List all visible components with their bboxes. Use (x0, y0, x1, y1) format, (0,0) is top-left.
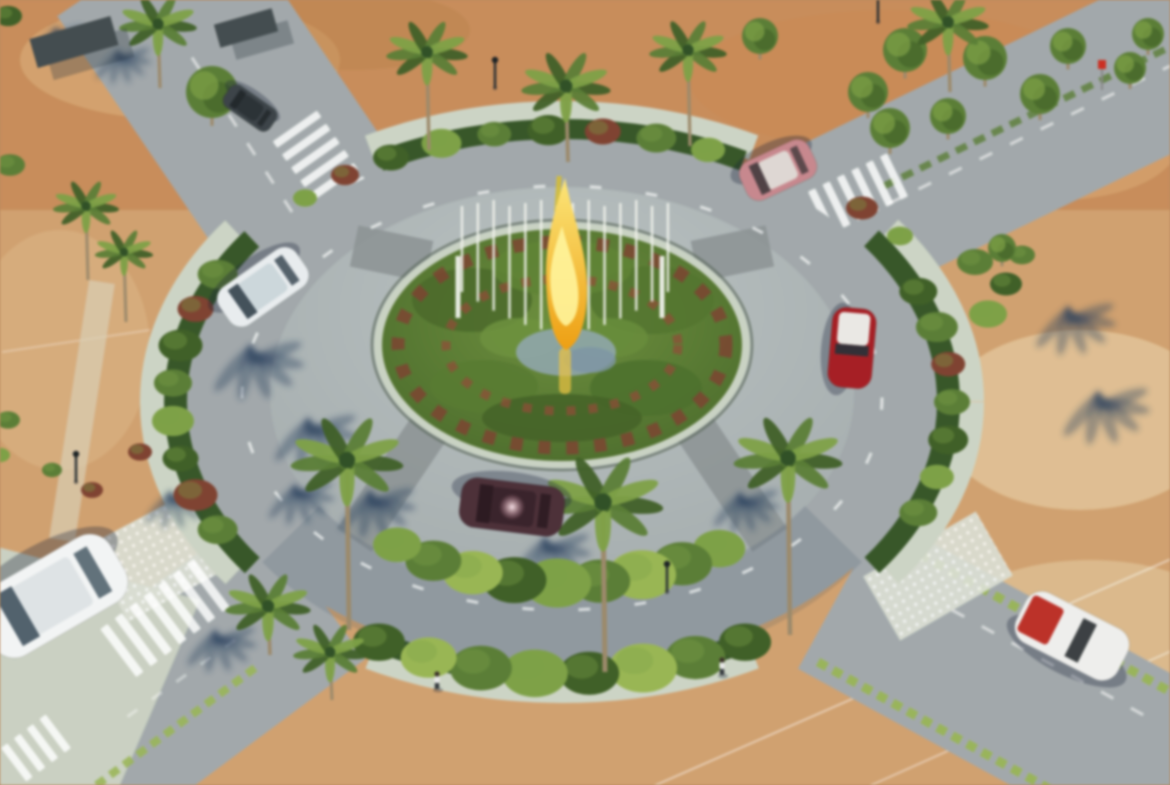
island-spoke-path (695, 246, 770, 262)
bush-highlight (938, 391, 958, 405)
bush (928, 425, 968, 454)
bush (128, 443, 152, 460)
tree-canopy-light (1053, 32, 1073, 52)
bush (331, 165, 359, 185)
bush-highlight (202, 262, 224, 278)
palm-crown-center (780, 450, 796, 466)
bush (401, 637, 457, 677)
bush-highlight (671, 639, 704, 663)
bush-highlight (481, 124, 500, 138)
bush-highlight (532, 117, 555, 134)
bush-highlight (377, 146, 397, 160)
palm-crown-center (339, 452, 355, 468)
bush-highlight (178, 481, 202, 499)
bush-highlight (334, 166, 349, 177)
bush-highlight (358, 626, 387, 647)
lamp-head (73, 451, 79, 457)
bush-highlight (295, 191, 308, 201)
bush-highlight (903, 280, 924, 295)
tree-canopy-light (966, 40, 990, 64)
bush-highlight (849, 198, 867, 211)
tree-canopy-light (886, 32, 910, 56)
bush (957, 249, 993, 275)
bush (559, 652, 619, 695)
bush-highlight (923, 466, 942, 480)
bush (154, 369, 192, 396)
roundabout-render (0, 0, 1170, 785)
pedestrian-legs (720, 669, 724, 675)
pedestrian-legs (435, 683, 439, 689)
bush-highlight (890, 228, 904, 238)
tree-canopy-light (745, 22, 765, 42)
bush (934, 389, 970, 415)
bush (198, 515, 238, 544)
bush (691, 138, 725, 162)
bush (502, 650, 568, 698)
tree-canopy-light (933, 102, 953, 122)
bush (899, 499, 937, 526)
scene-svg (0, 0, 1170, 785)
bush (178, 296, 214, 322)
bush-highlight (508, 653, 544, 679)
bush-highlight (44, 464, 55, 472)
bush-highlight (973, 302, 994, 317)
tree-canopy-light (190, 71, 219, 100)
bush-highlight (694, 139, 713, 153)
bush (373, 527, 421, 562)
tree-canopy-light (873, 112, 895, 134)
bush-highlight (616, 647, 653, 674)
palm-crown-center (81, 201, 91, 211)
bush (159, 330, 203, 362)
bush-highlight (378, 530, 404, 549)
palm-crown-center (120, 248, 128, 256)
bush (174, 479, 218, 511)
sign-panel (1098, 60, 1106, 69)
bush-highlight (202, 517, 224, 533)
bush-highlight (961, 251, 981, 265)
bush-highlight (181, 298, 201, 312)
bush (920, 465, 954, 489)
bush (373, 145, 409, 171)
bush-highlight (903, 501, 924, 516)
bush-highlight (158, 371, 179, 386)
bush-highlight (724, 626, 753, 647)
bush-highlight (166, 447, 186, 461)
bush-highlight (156, 408, 179, 425)
bush (636, 124, 676, 153)
bush (899, 278, 937, 305)
palm-crown-center (560, 80, 573, 93)
bush (887, 227, 913, 246)
bush-highlight (456, 649, 490, 674)
bush-highlight (993, 274, 1011, 287)
tree-canopy-light (851, 76, 873, 98)
bush-highlight (932, 427, 954, 443)
pedestrian-torso (434, 676, 439, 683)
bush-highlight (83, 483, 95, 492)
bush-highlight (640, 126, 662, 142)
pedestrian-torso (719, 662, 724, 669)
pool-deep (564, 347, 616, 373)
bush-highlight (565, 655, 598, 679)
vehicle-roof (836, 312, 870, 347)
bush (450, 646, 512, 691)
tree-canopy-light (1023, 78, 1045, 100)
palm-crown-center (942, 16, 954, 28)
bush (916, 312, 958, 342)
pedestrian-head (434, 671, 439, 676)
palm-crown-center (682, 44, 693, 55)
island-spoke-path (354, 246, 429, 262)
bush-highlight (935, 354, 954, 368)
bush-highlight (406, 640, 437, 662)
palm-crown-center (152, 18, 163, 29)
pedestrian-head (719, 657, 724, 662)
bush (846, 196, 878, 219)
bush (81, 482, 103, 498)
bush (585, 119, 621, 145)
palm-crown-center (262, 600, 274, 612)
tree-canopy-light (1134, 21, 1152, 39)
bush (990, 272, 1022, 295)
lamp-head (664, 561, 670, 567)
bush (719, 623, 771, 660)
bush-highlight (163, 332, 187, 350)
lamp-head (492, 57, 498, 63)
bush (152, 406, 194, 436)
tree-canopy-light (1116, 55, 1134, 73)
bush (969, 300, 1007, 327)
palm-crown-center (325, 647, 336, 658)
bush (42, 463, 62, 477)
bush (293, 189, 317, 206)
palm-crown-center (421, 46, 433, 58)
bush-highlight (130, 445, 143, 455)
palm-crown-center (594, 493, 611, 510)
bush (931, 352, 965, 376)
bush-highlight (920, 314, 943, 331)
bush (477, 122, 511, 146)
tree-canopy-light (990, 237, 1005, 252)
bush (163, 446, 199, 472)
flame-reflection (559, 348, 571, 394)
bush (609, 644, 677, 693)
bush-highlight (588, 120, 608, 134)
